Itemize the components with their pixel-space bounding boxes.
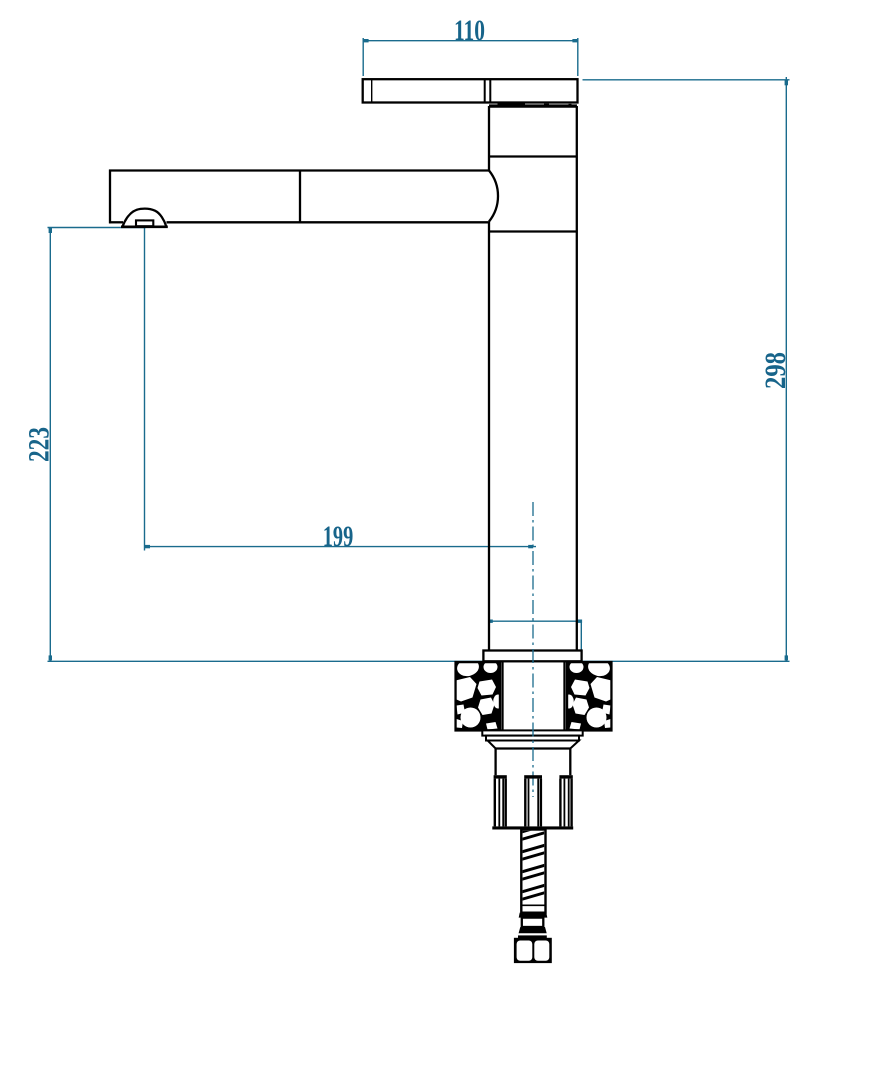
svg-text:199: 199 (323, 520, 354, 553)
svg-text:223: 223 (22, 427, 55, 462)
svg-text:110: 110 (454, 14, 485, 47)
svg-text:298: 298 (759, 352, 792, 389)
